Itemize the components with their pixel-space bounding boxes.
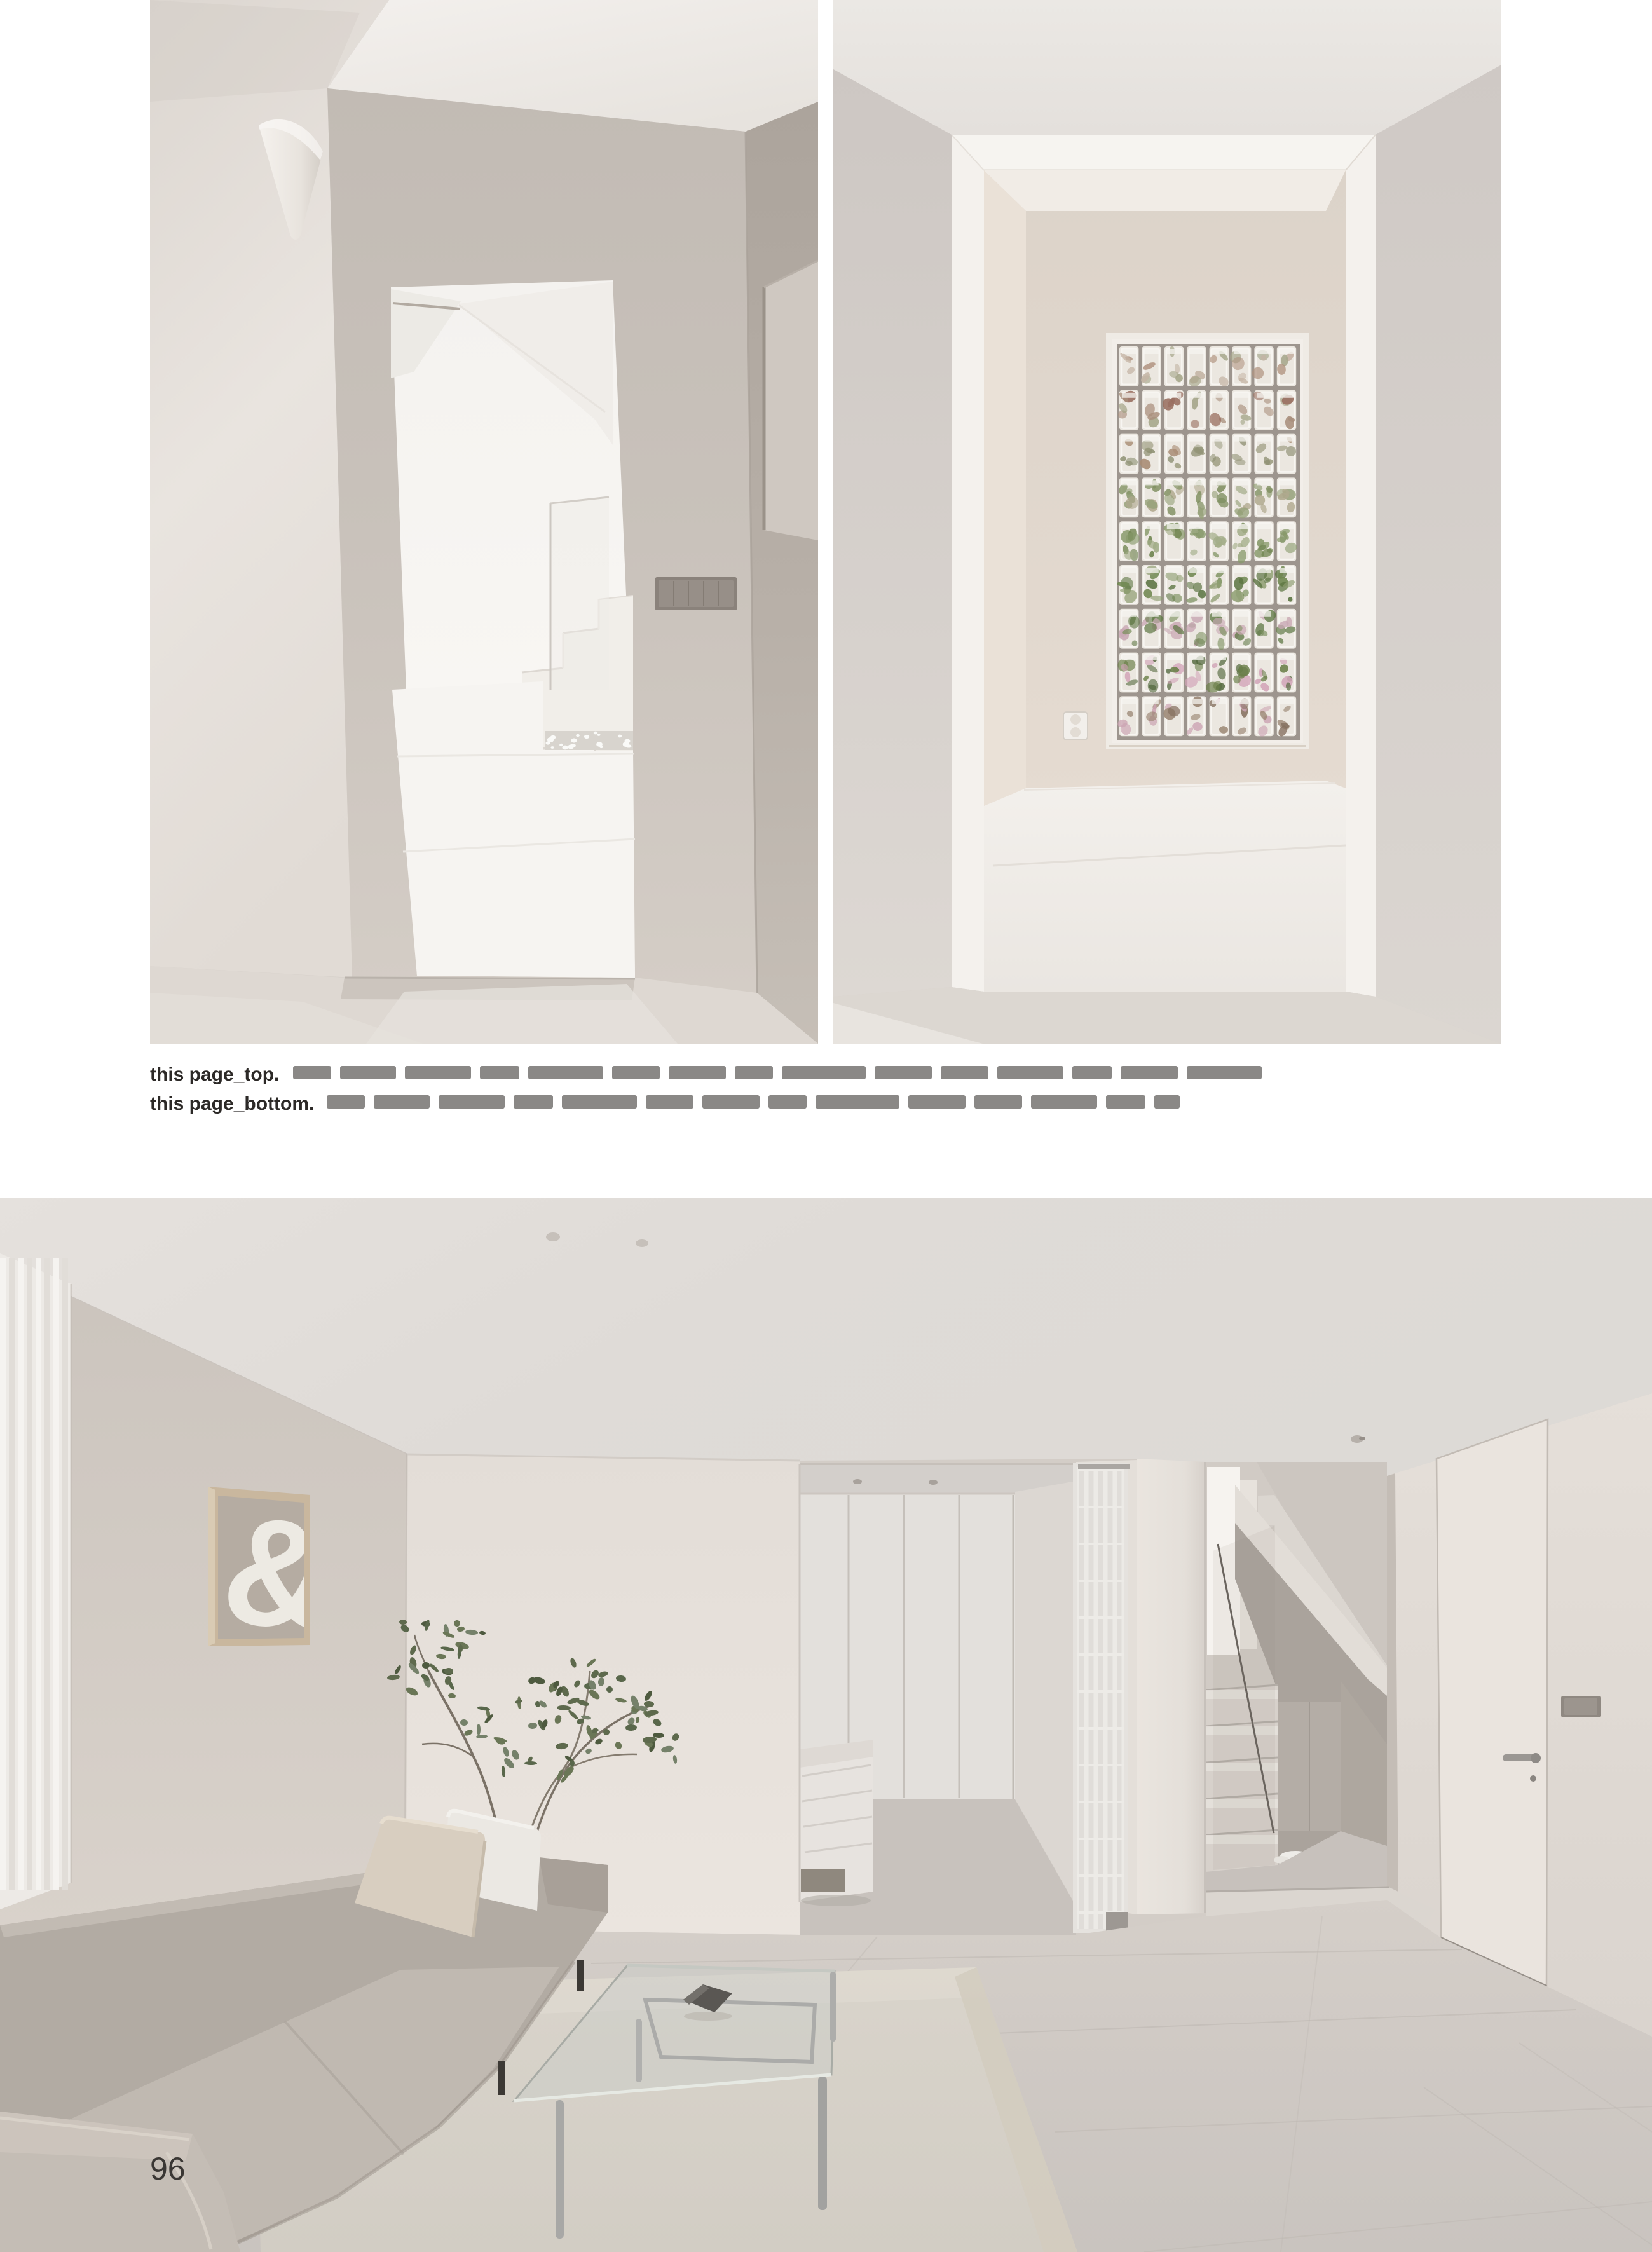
- svg-text:96: 96: [150, 2151, 186, 2187]
- svg-text:this page_top.: this page_top.: [150, 1064, 279, 1085]
- svg-text:this page_bottom.: this page_bottom.: [150, 1093, 314, 1114]
